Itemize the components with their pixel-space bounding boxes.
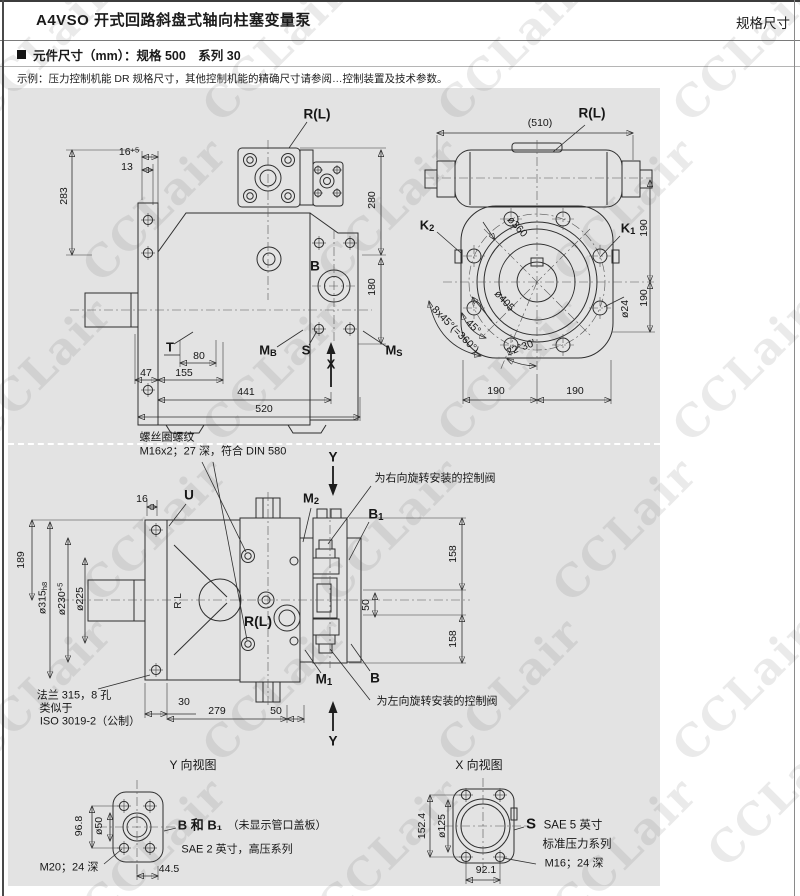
drawing-view-Y [92,780,182,880]
drawing-flange-view [425,125,655,404]
technical-drawing [0,0,800,896]
drawing-side-view-bottom [32,462,470,731]
drawing-view-X [430,778,536,884]
drawing-side-view [66,122,387,433]
